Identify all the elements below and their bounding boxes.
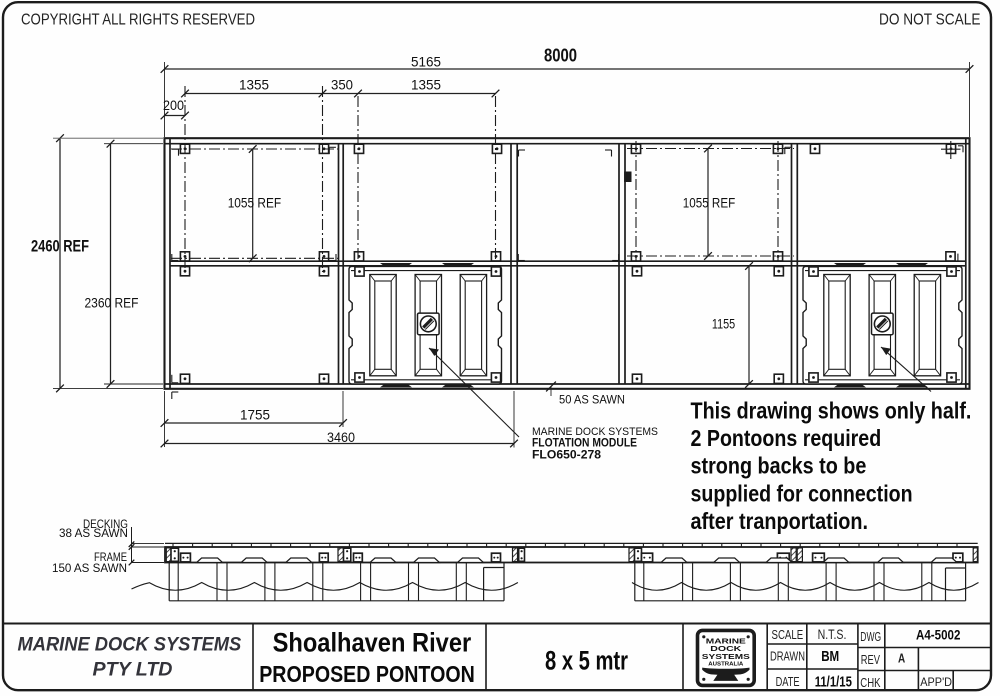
svg-text:MARINE DOCK SYSTEMS: MARINE DOCK SYSTEMS [532,426,658,438]
svg-text:350: 350 [331,77,353,93]
svg-text:CHK: CHK [860,675,880,690]
svg-text:50 AS SAWN: 50 AS SAWN [559,395,625,407]
svg-text:PTY LTD: PTY LTD [93,660,173,681]
svg-text:PROPOSED PONTOON: PROPOSED PONTOON [259,661,475,687]
svg-text:SCALE: SCALE [772,627,804,642]
svg-text:2 Pontoons required: 2 Pontoons required [691,425,882,451]
svg-text:3460: 3460 [327,429,355,445]
svg-text:1355: 1355 [411,77,441,93]
svg-text:1055 REF: 1055 REF [683,195,735,211]
svg-text:8 x 5 mtr: 8 x 5 mtr [545,646,628,676]
svg-text:N.T.S.: N.T.S. [818,627,847,642]
svg-text:Shoalhaven River: Shoalhaven River [273,627,472,657]
svg-text:DWG: DWG [860,629,881,644]
svg-text:AUSTRALIA: AUSTRALIA [708,662,743,668]
svg-text:supplied for connection: supplied for connection [691,480,913,506]
svg-text:COPYRIGHT ALL RIGHTS RESERV: COPYRIGHT ALL RIGHTS RESERVED [21,11,255,28]
svg-text:A4-5002: A4-5002 [916,627,961,643]
svg-text:1155: 1155 [712,315,735,331]
svg-text:DO NOT SCALE: DO NOT SCALE [879,11,981,28]
svg-text:1355: 1355 [239,77,269,93]
svg-text:1055 REF: 1055 REF [228,195,282,211]
svg-text:FLOTATION MODULE: FLOTATION MODULE [532,438,637,450]
svg-text:SYSTEMS: SYSTEMS [702,652,750,661]
svg-text:A: A [898,650,906,665]
svg-text:2360 REF: 2360 REF [85,295,139,311]
svg-text:150 AS SAWN: 150 AS SAWN [52,563,127,575]
svg-text:after tranportation.: after tranportation. [691,508,869,534]
svg-text:2460 REF: 2460 REF [31,236,89,255]
svg-text:DRAWN: DRAWN [770,649,805,664]
svg-text:strong backs to be: strong backs to be [691,453,867,479]
svg-text:APP'D: APP'D [920,675,952,689]
svg-text:8000: 8000 [544,46,577,66]
svg-text:1755: 1755 [240,407,270,423]
svg-text:BM: BM [821,648,839,665]
svg-text:11/1/15: 11/1/15 [815,673,852,690]
svg-text:38 AS SAWN: 38 AS SAWN [59,528,128,540]
svg-text:This drawing shows only half.: This drawing shows only half. [691,397,972,423]
svg-text:REV: REV [861,652,880,667]
svg-text:5165: 5165 [411,54,441,70]
svg-text:200: 200 [163,97,184,113]
svg-text:MARINE DOCK SYSTEMS: MARINE DOCK SYSTEMS [18,635,242,656]
svg-text:FLO650-278: FLO650-278 [532,449,602,461]
svg-text:DATE: DATE [776,674,800,689]
